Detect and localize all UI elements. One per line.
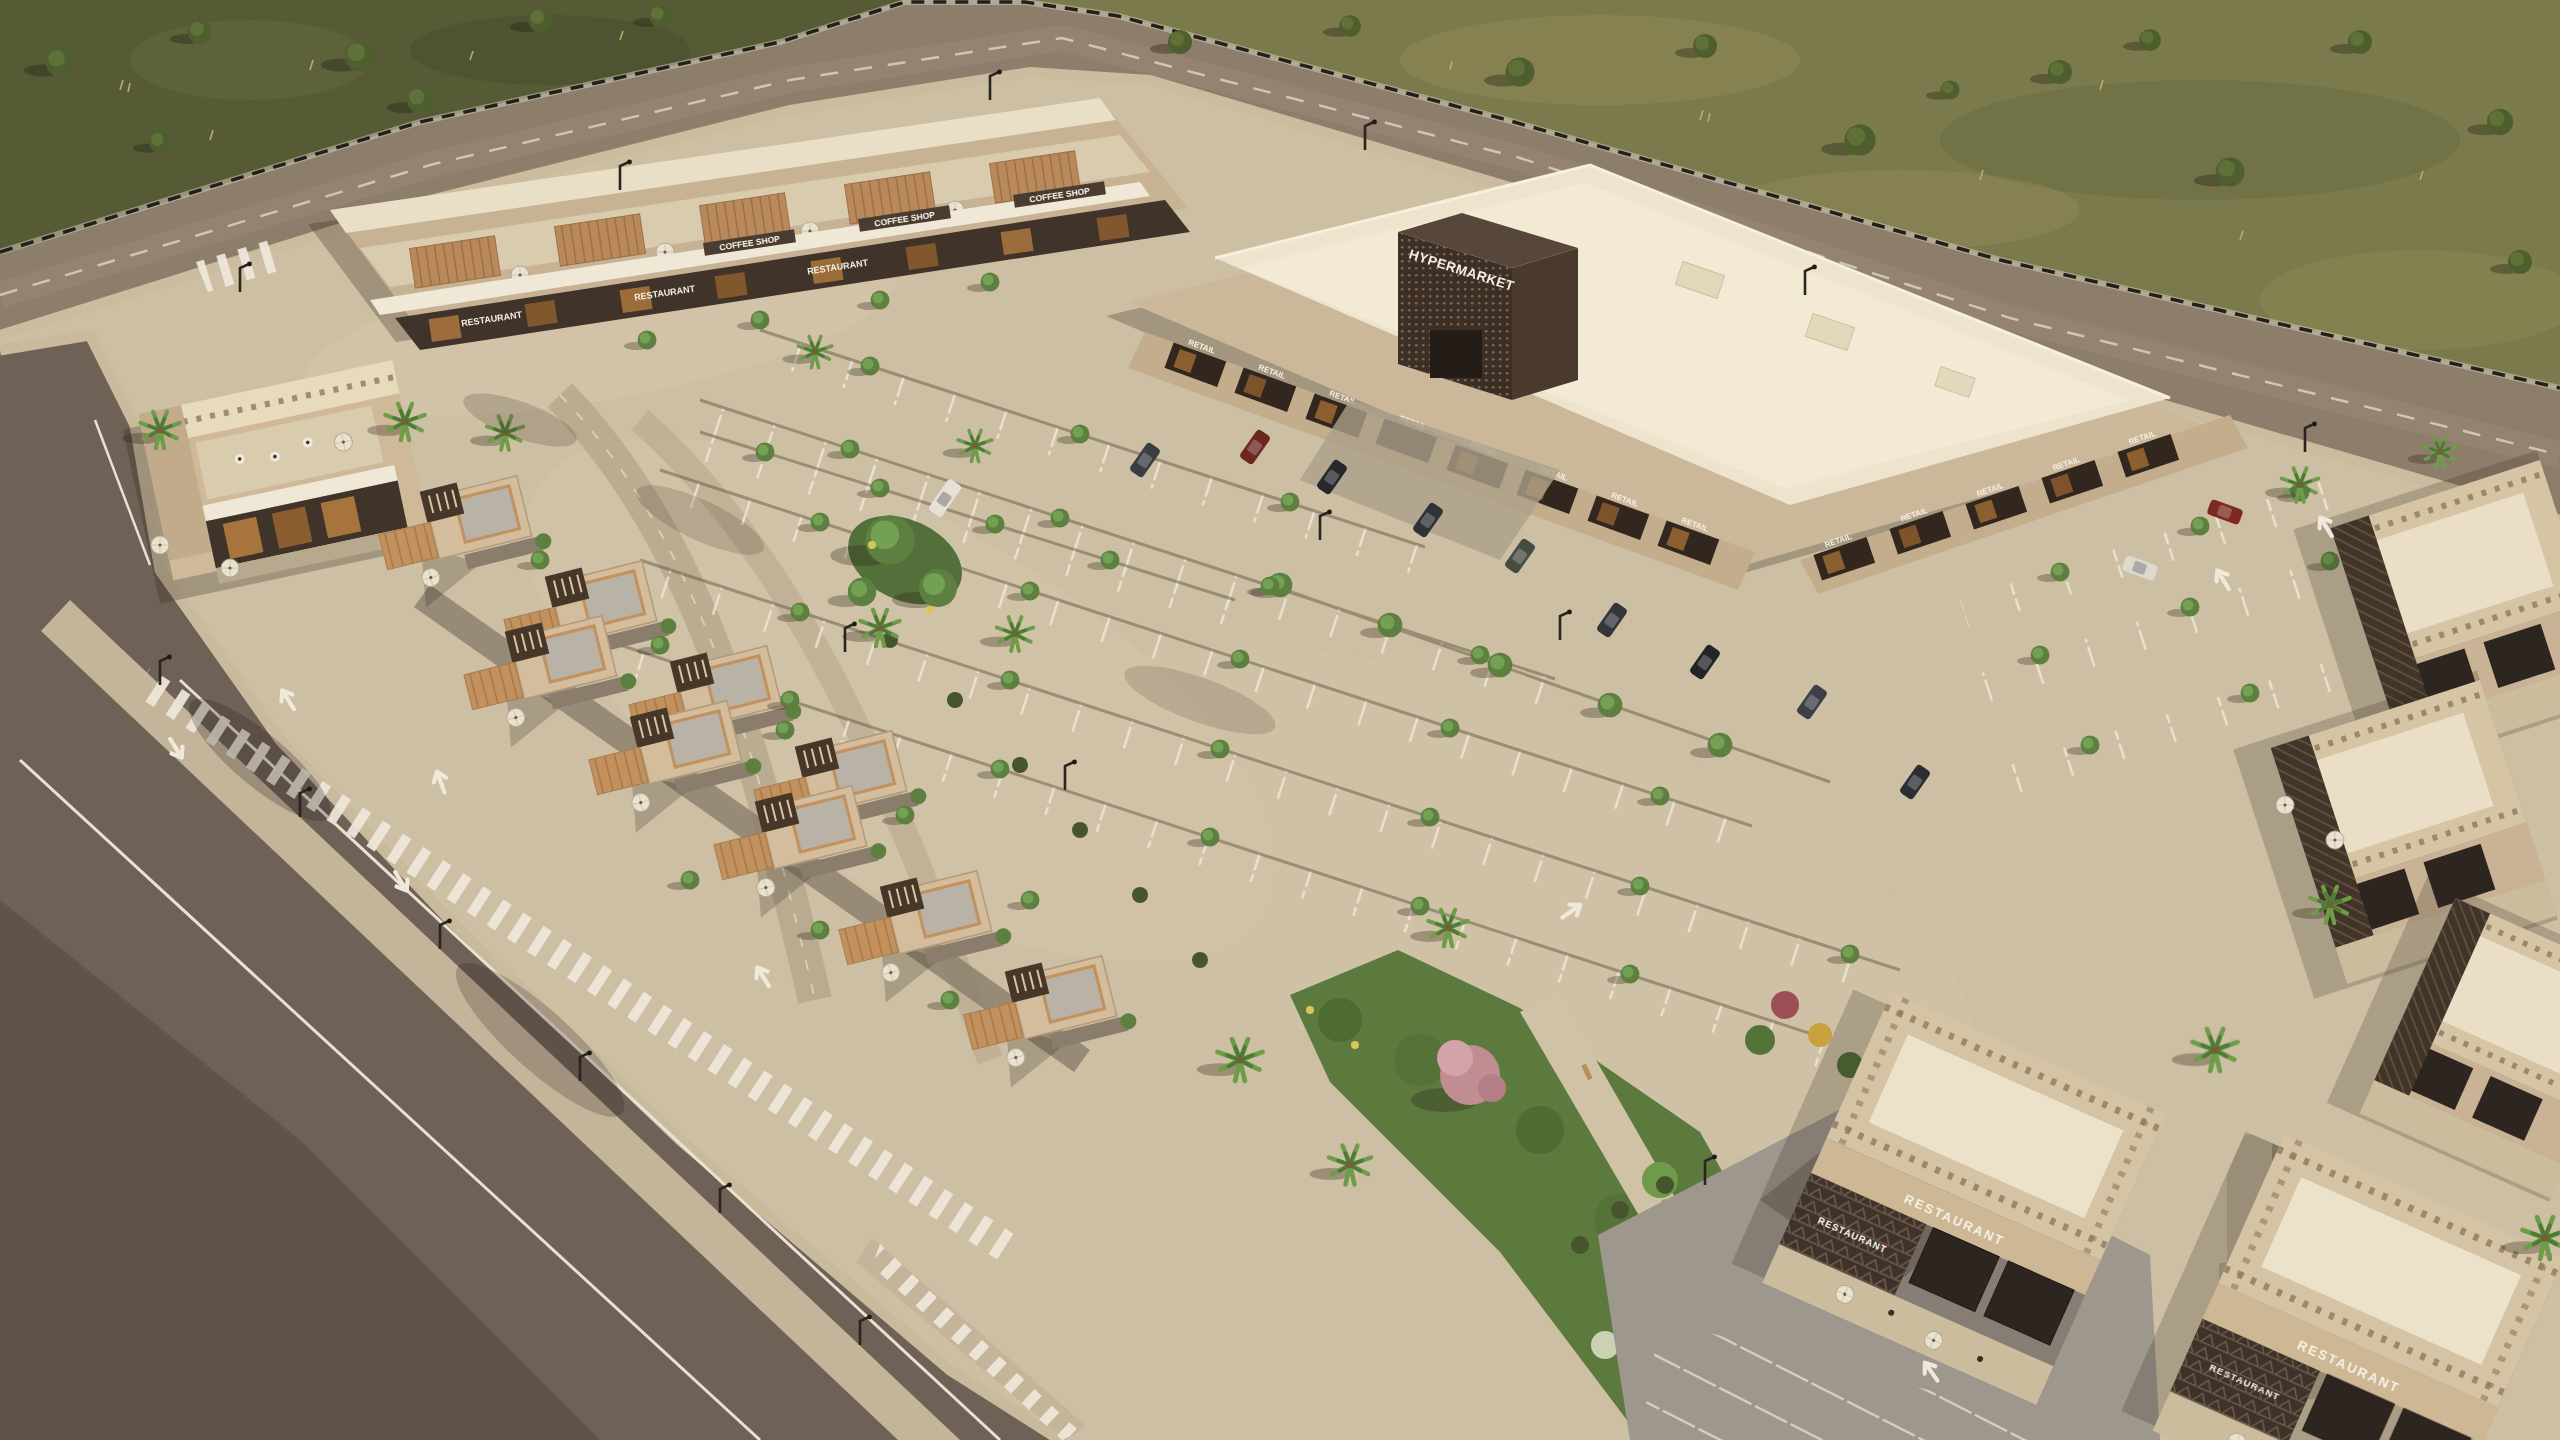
umbrella: [221, 559, 239, 577]
umbrella: [2326, 831, 2344, 849]
tower-side: [1512, 248, 1578, 400]
umbrella: [2276, 796, 2294, 814]
umbrella: [151, 536, 169, 554]
aerial-render-scene: RESTAURANT RESTAURANT: [0, 0, 2560, 1440]
hypermarket-tower: HYPERMARKET: [1398, 213, 1578, 400]
